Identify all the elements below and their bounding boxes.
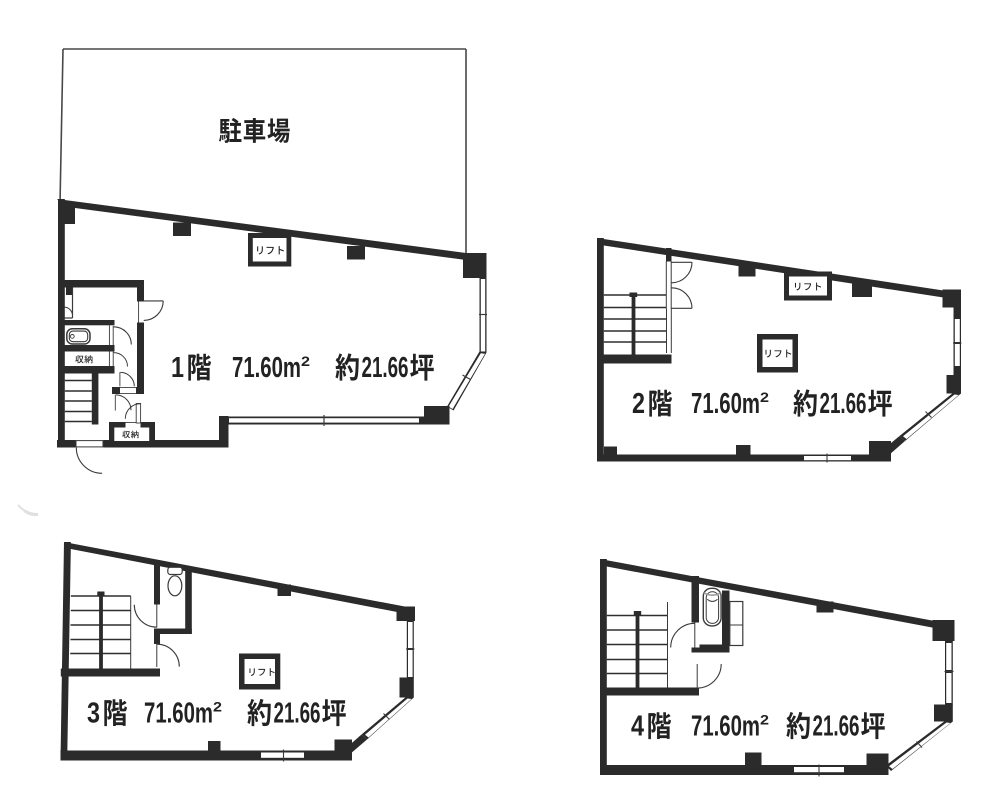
svg-text:21.66: 21.66 bbox=[820, 388, 867, 420]
svg-text:71.60m: 71.60m bbox=[691, 711, 760, 743]
svg-text:3: 3 bbox=[87, 698, 100, 730]
svg-text:71.60m: 71.60m bbox=[232, 352, 301, 384]
svg-text:1: 1 bbox=[171, 352, 184, 384]
svg-text:2: 2 bbox=[760, 712, 769, 728]
svg-text:21.66: 21.66 bbox=[362, 352, 409, 384]
svg-text:71.60m: 71.60m bbox=[691, 388, 760, 420]
svg-text:2: 2 bbox=[632, 388, 645, 420]
svg-text:2: 2 bbox=[301, 353, 310, 369]
svg-text:71.60m: 71.60m bbox=[144, 698, 213, 730]
svg-text:2: 2 bbox=[760, 389, 769, 405]
svg-text:21.66: 21.66 bbox=[274, 698, 321, 730]
svg-text:2: 2 bbox=[213, 699, 222, 715]
svg-text:4: 4 bbox=[631, 711, 644, 743]
svg-text:21.66: 21.66 bbox=[813, 711, 860, 743]
